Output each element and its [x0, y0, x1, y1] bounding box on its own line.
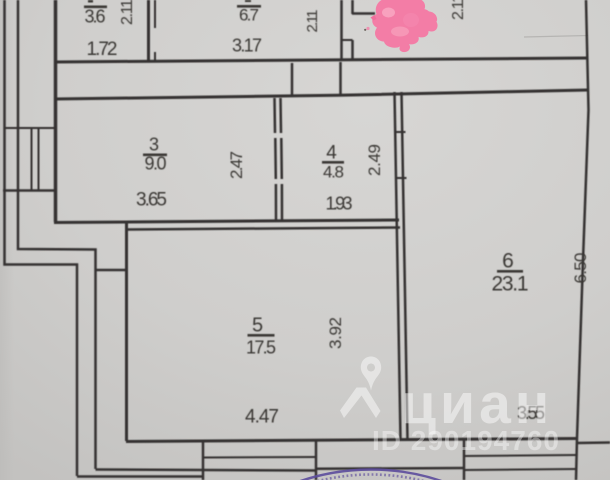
svg-text:1.93: 1.93: [326, 194, 353, 214]
svg-text:2.49: 2.49: [365, 144, 384, 176]
svg-text:4.47: 4.47: [245, 407, 279, 428]
svg-text:17.5: 17.5: [246, 338, 276, 358]
svg-text:9.0: 9.0: [145, 154, 167, 174]
svg-text:3: 3: [149, 135, 159, 155]
svg-text:6: 6: [502, 250, 514, 273]
svg-text:3.92: 3.92: [326, 317, 345, 349]
svg-text:2.11: 2.11: [450, 0, 467, 20]
svg-text:23.1: 23.1: [492, 273, 529, 296]
svg-text:3.17: 3.17: [232, 36, 262, 56]
svg-text:5: 5: [252, 315, 263, 337]
svg-text:1.72: 1.72: [87, 39, 118, 60]
svg-text:6.50: 6.50: [571, 253, 590, 284]
svg-text:2.11: 2.11: [119, 0, 136, 25]
svg-text:2.11: 2.11: [304, 10, 321, 33]
svg-text:2.47: 2.47: [227, 151, 246, 179]
svg-text:4: 4: [326, 143, 337, 164]
svg-text:6.7: 6.7: [239, 6, 259, 25]
svg-text:ID 290194760: ID 290194760: [372, 425, 560, 456]
svg-text:3.65: 3.65: [136, 190, 167, 211]
svg-text:4.8: 4.8: [323, 163, 344, 182]
svg-text:3.6: 3.6: [85, 7, 106, 27]
